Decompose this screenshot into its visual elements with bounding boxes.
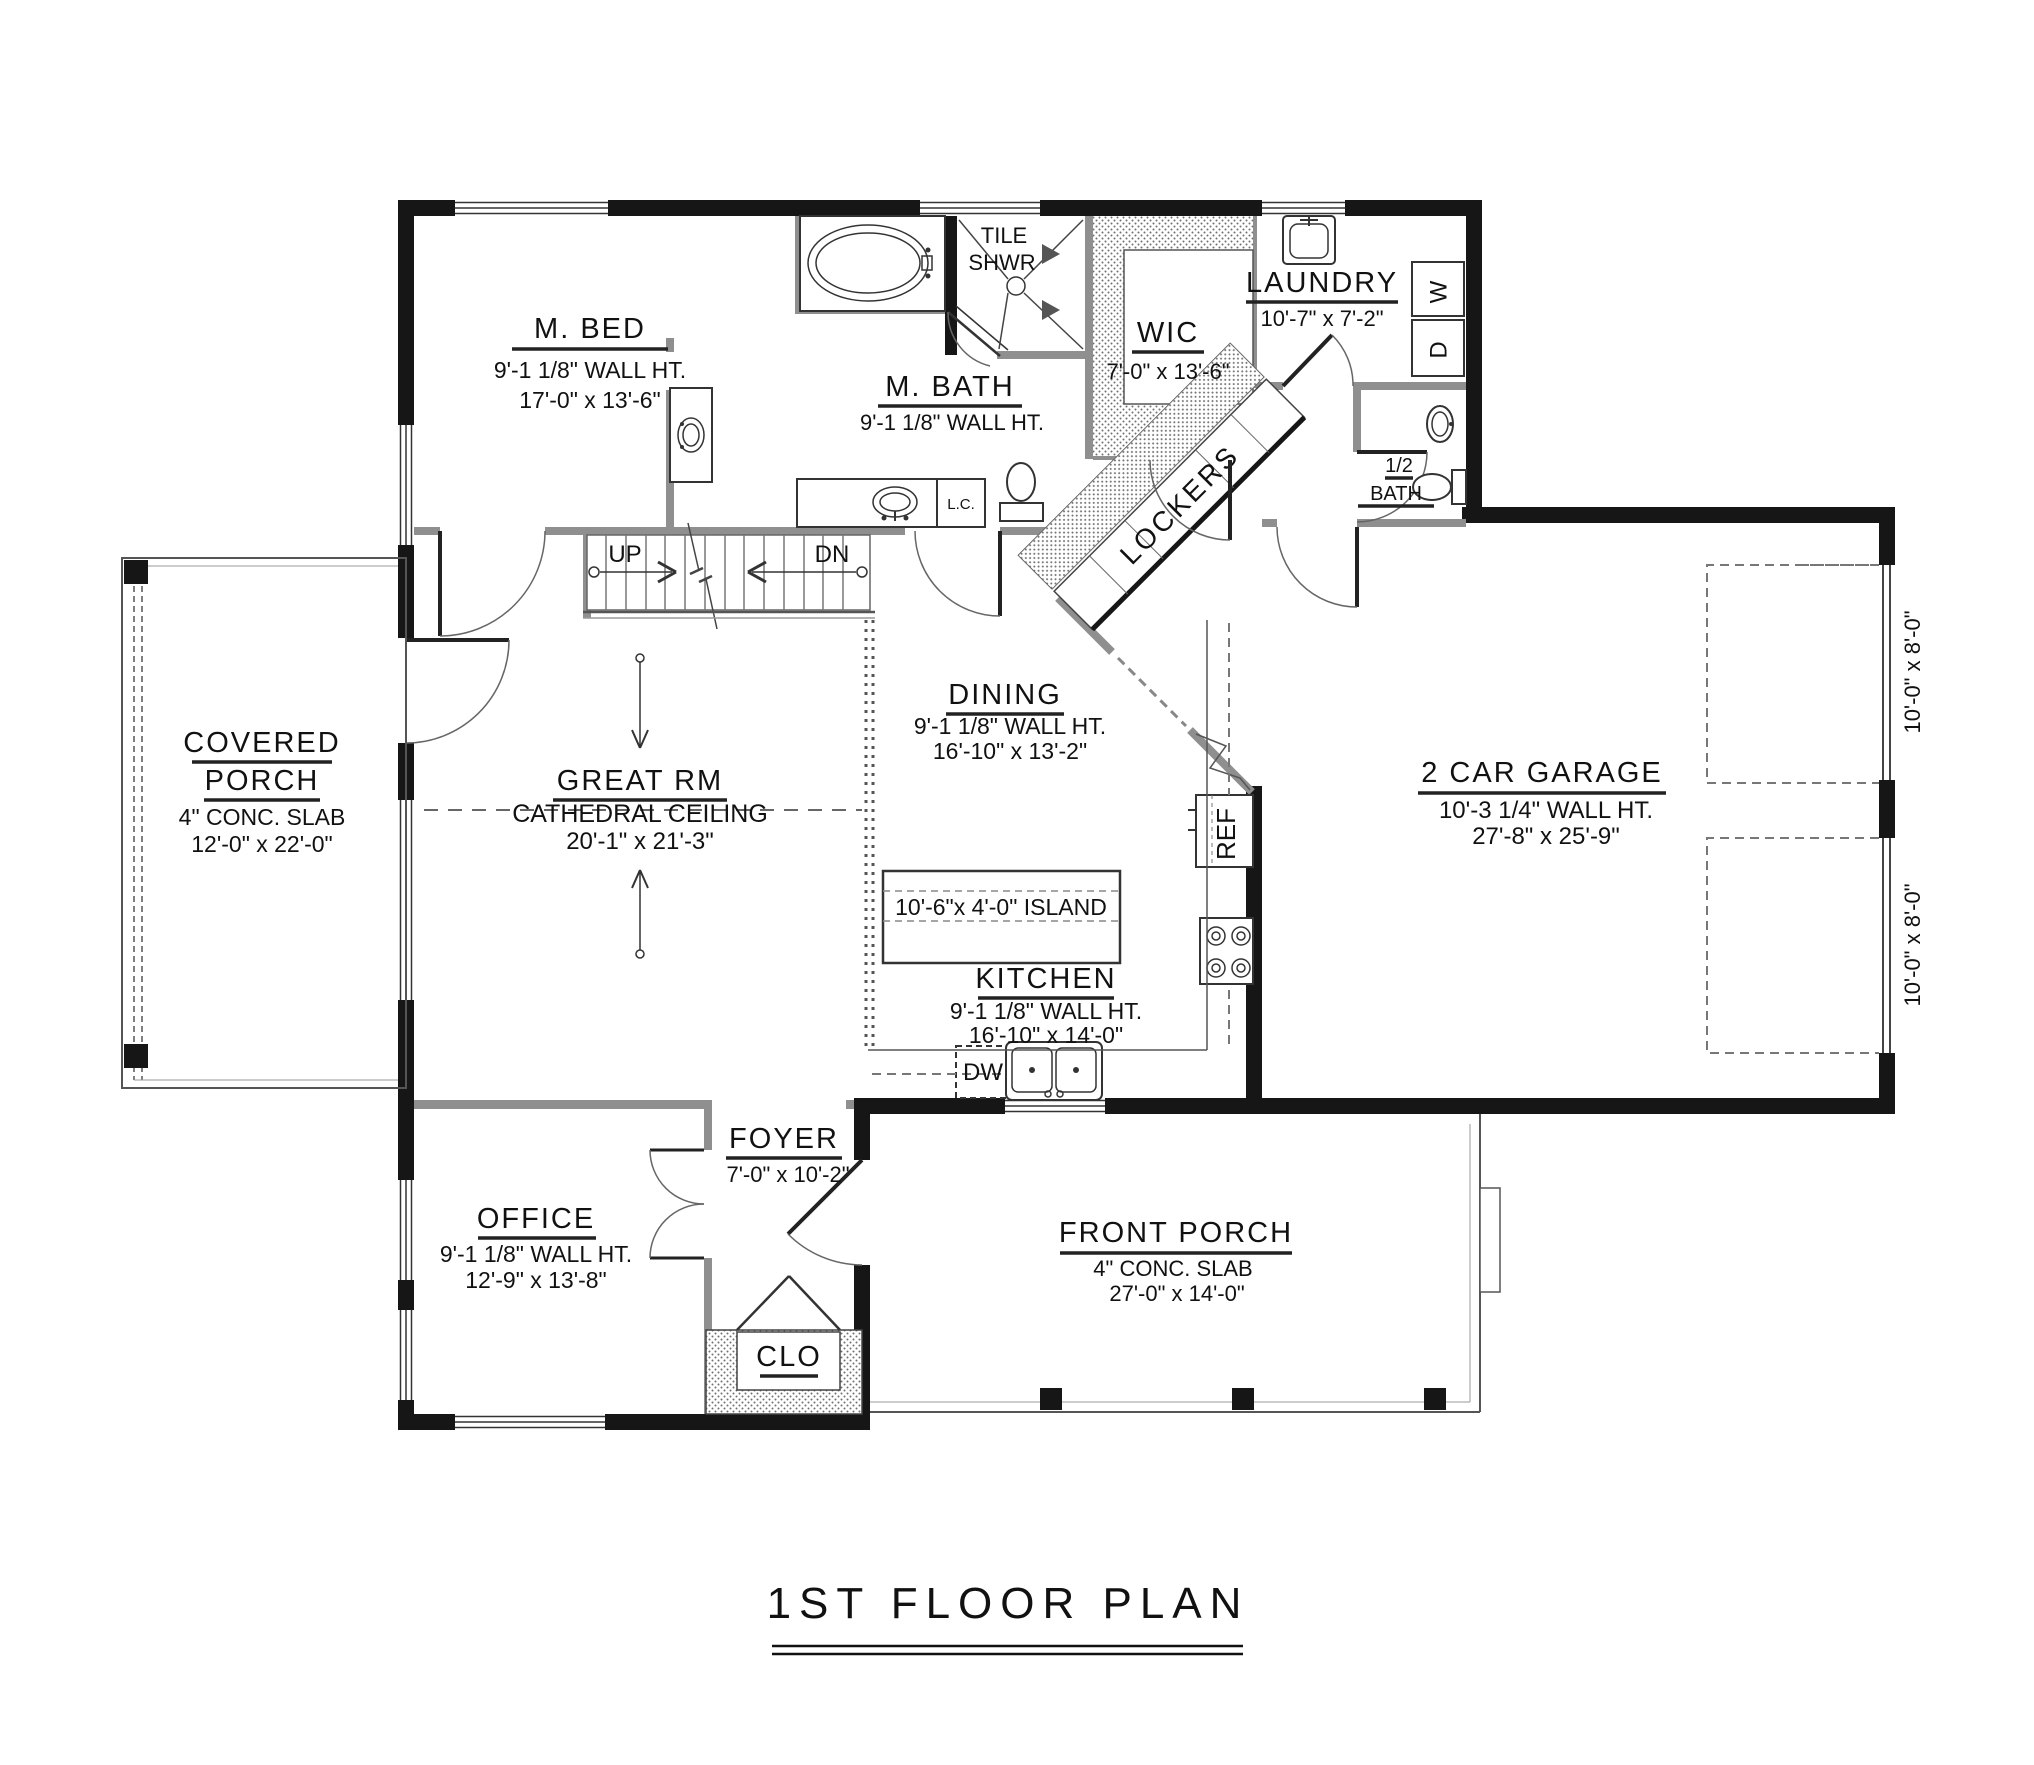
window-kitchen-sink xyxy=(1005,1101,1105,1112)
mbed-label: M. BED 9'-1 1/8" WALL HT. 17'-0" x 13'-6… xyxy=(494,313,686,413)
garage-label: 2 CAR GARAGE 10'-3 1/4" WALL HT. 27'-8" … xyxy=(1418,757,1666,850)
slab-note: 4" CONC. SLAB xyxy=(1093,1256,1252,1281)
room-name: GREAT RM xyxy=(557,765,723,797)
island-label: 10'-6"x 4'-0" ISLAND xyxy=(895,894,1107,920)
porch-post xyxy=(124,560,148,584)
room-name: WIC xyxy=(1137,317,1199,349)
garage-door-size-2: 10'-0" x 8'-0" xyxy=(1900,883,1925,1006)
room-name: OFFICE xyxy=(477,1203,595,1235)
door-office-french xyxy=(650,1150,704,1258)
porch-post xyxy=(1424,1388,1446,1410)
room-name: CLO xyxy=(756,1341,822,1373)
room-name: LAUNDRY xyxy=(1246,267,1398,299)
wall-height: 9'-1 1/8" WALL HT. xyxy=(914,713,1106,739)
window-office-left-2 xyxy=(401,1310,412,1400)
room-name: FRONT PORCH xyxy=(1059,1217,1293,1249)
dn-label: DN xyxy=(815,541,850,568)
room-name: KITCHEN xyxy=(975,963,1116,995)
window-tub-top xyxy=(920,203,1040,214)
room-name: DINING xyxy=(948,679,1062,711)
staircase: UP DN xyxy=(583,523,875,629)
dining-label: DINING 9'-1 1/8" WALL HT. 16'-10" x 13'-… xyxy=(914,679,1106,764)
room-size: 20'-1" x 21'-3" xyxy=(566,828,714,855)
ref-label: REF xyxy=(1211,808,1241,860)
washer-icon: W xyxy=(1412,262,1464,316)
wall-height: 9'-1 1/8" WALL HT. xyxy=(494,357,686,383)
door-clo-double xyxy=(737,1276,840,1330)
door-covered-porch xyxy=(406,640,509,743)
great-rm-label: GREAT RM CATHEDRAL CEILING 20'-1" x 21'-… xyxy=(512,765,768,855)
title-block: 1ST FLOOR PLAN xyxy=(767,1579,1250,1654)
page-title: 1ST FLOOR PLAN xyxy=(767,1579,1250,1628)
door-mbath-hall xyxy=(915,531,1000,616)
room-labels: M. BED 9'-1 1/8" WALL HT. 17'-0" x 13'-6… xyxy=(179,223,1925,1376)
range-icon xyxy=(1200,918,1253,984)
slab-note: 4" CONC. SLAB xyxy=(179,804,346,830)
window-office-bottom xyxy=(455,1417,605,1428)
window-mbed-left xyxy=(401,425,412,545)
laundry-label: LAUNDRY 10'-7" x 7'-2" xyxy=(1246,267,1398,331)
bathtub-icon xyxy=(800,216,945,311)
room-name: M. BATH xyxy=(885,371,1014,403)
room-name: 1/2 xyxy=(1385,455,1413,477)
room-size: 12'-0" x 22'-0" xyxy=(191,831,332,857)
room-name: 2 CAR GARAGE xyxy=(1421,757,1663,789)
door-laundry xyxy=(1283,335,1353,386)
front-porch-label: FRONT PORCH 4" CONC. SLAB 27'-0" x 14'-0… xyxy=(1059,1217,1293,1306)
dryer-icon: D xyxy=(1412,320,1464,376)
toilet-icon xyxy=(1000,463,1043,521)
room-size: 16'-10" x 14'-0" xyxy=(969,1022,1123,1048)
ceiling-note: CATHEDRAL CEILING xyxy=(512,800,768,828)
office-label: OFFICE 9'-1 1/8" WALL HT. 12'-9" x 13'-8… xyxy=(440,1203,632,1293)
room-size: 7'-0" x 10'-2" xyxy=(726,1162,849,1187)
room-name: BATH xyxy=(1370,483,1422,505)
porch-step xyxy=(1480,1188,1500,1292)
room-size: 27'-8" x 25'-9" xyxy=(1472,823,1620,850)
room-name: M. BED xyxy=(534,313,646,345)
room-name: SHWR xyxy=(968,250,1035,275)
room-name: COVERED xyxy=(183,727,340,759)
wall-height: 9'-1 1/8" WALL HT. xyxy=(860,410,1044,435)
room-size: 16'-10" x 13'-2" xyxy=(933,738,1087,764)
washer-label: W xyxy=(1425,280,1452,303)
foyer-label: FOYER 7'-0" x 10'-2" xyxy=(726,1123,850,1187)
wall-height: 10'-3 1/4" WALL HT. xyxy=(1439,797,1653,824)
window-mbed-top xyxy=(455,203,608,214)
vanity-sink-icon xyxy=(670,388,712,482)
porch-post xyxy=(1232,1388,1254,1410)
door-garage-entry xyxy=(1277,527,1357,607)
room-name: PORCH xyxy=(205,765,320,797)
garage-door-size-1: 10'-0" x 8'-0" xyxy=(1900,610,1925,733)
porch-post xyxy=(124,1044,148,1068)
mbath-label: M. BATH 9'-1 1/8" WALL HT. xyxy=(860,371,1044,435)
tile-shwr-label: TILE SHWR xyxy=(968,223,1035,275)
room-size: 12'-9" x 13'-8" xyxy=(465,1267,606,1293)
up-label: UP xyxy=(608,541,641,568)
laundry-sink-icon xyxy=(1283,216,1335,264)
floor-plan-page: LOCKERS UP DN xyxy=(0,0,2034,1765)
dw-label: DW xyxy=(963,1059,1003,1086)
kitchen-label: KITCHEN 9'-1 1/8" WALL HT. 16'-10" x 14'… xyxy=(950,963,1142,1048)
door-mbed xyxy=(440,531,545,636)
clo-label: CLO xyxy=(756,1341,822,1376)
covered-porch-label: COVERED PORCH 4" CONC. SLAB 12'-0" x 22'… xyxy=(179,727,346,857)
half-bath-sink-icon xyxy=(1427,406,1453,442)
window-laundry-top xyxy=(1262,203,1345,214)
wall-height: 9'-1 1/8" WALL HT. xyxy=(440,1241,632,1267)
room-name: FOYER xyxy=(729,1123,839,1155)
lc-label: L.C. xyxy=(947,496,975,513)
room-size: 27'-0" x 14'-0" xyxy=(1109,1281,1244,1306)
floor-plan-drawing: LOCKERS UP DN xyxy=(0,0,2034,1765)
wall-height: 9'-1 1/8" WALL HT. xyxy=(950,998,1142,1024)
porch-post xyxy=(1040,1388,1062,1410)
vanity-sink-icon xyxy=(797,479,937,527)
dryer-label: D xyxy=(1425,341,1452,358)
window-office-left-1 xyxy=(401,1180,412,1280)
garage-doors xyxy=(1707,565,1890,1053)
room-name: TILE xyxy=(981,223,1027,248)
room-size: 7'-0" x 13'-6" xyxy=(1106,359,1229,384)
room-size: 17'-0" x 13'-6" xyxy=(519,387,660,413)
room-size: 10'-7" x 7'-2" xyxy=(1260,306,1383,331)
